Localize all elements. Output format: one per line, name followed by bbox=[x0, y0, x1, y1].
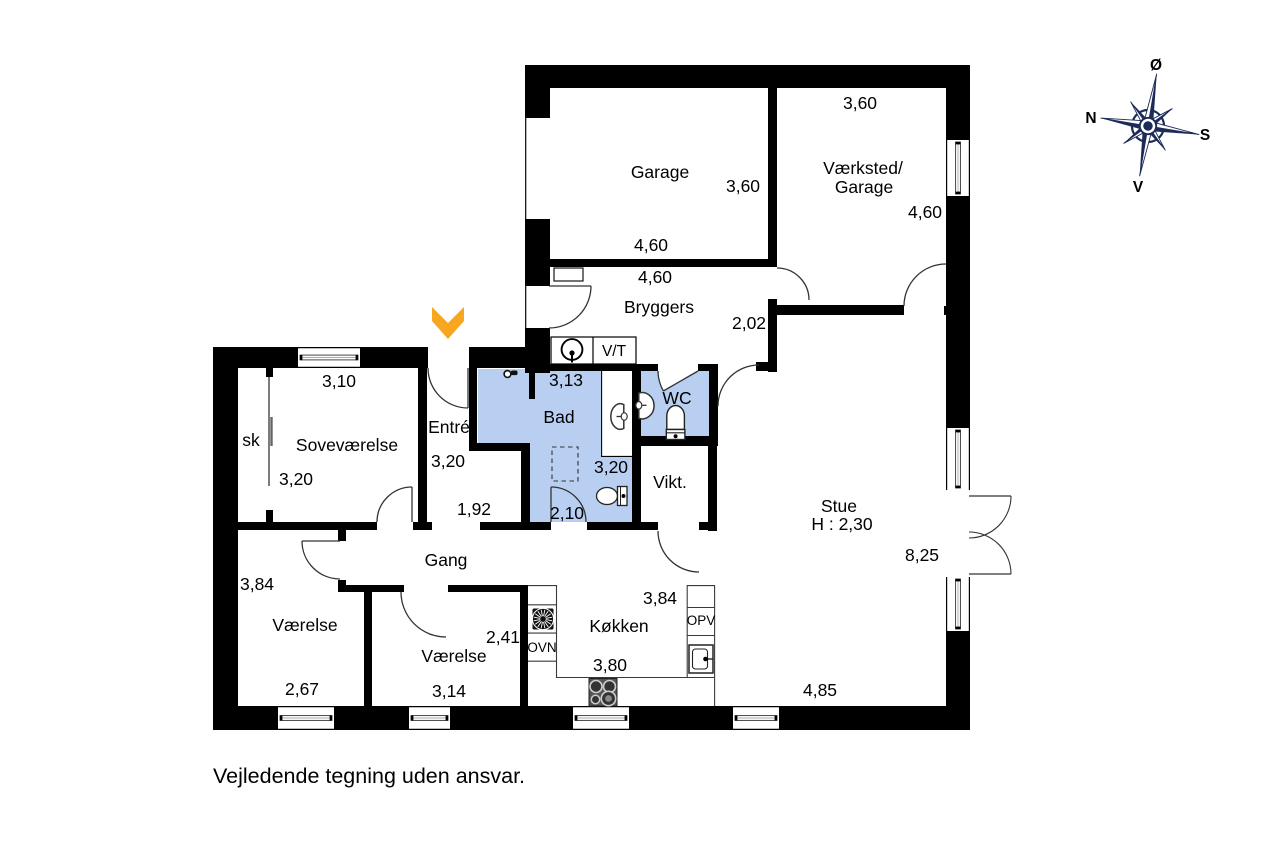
svg-text:Gang: Gang bbox=[425, 550, 468, 570]
svg-text:8,25: 8,25 bbox=[905, 545, 939, 565]
svg-text:3,60: 3,60 bbox=[726, 176, 760, 196]
svg-text:3,20: 3,20 bbox=[279, 469, 313, 489]
svg-text:3,60: 3,60 bbox=[843, 93, 877, 113]
svg-text:1,92: 1,92 bbox=[457, 499, 491, 519]
svg-text:Ø: Ø bbox=[1150, 57, 1162, 74]
svg-text:WC: WC bbox=[662, 388, 691, 408]
svg-text:3,14: 3,14 bbox=[432, 681, 466, 701]
svg-text:Vikt.: Vikt. bbox=[653, 472, 687, 492]
svg-text:3,20: 3,20 bbox=[594, 457, 628, 477]
svg-text:4,85: 4,85 bbox=[803, 680, 837, 700]
svg-text:3,13: 3,13 bbox=[549, 370, 583, 390]
svg-text:Entré: Entré bbox=[428, 417, 470, 437]
svg-text:Soveværelse: Soveværelse bbox=[296, 435, 398, 455]
svg-text:V/T: V/T bbox=[602, 343, 627, 360]
svg-text:Garage: Garage bbox=[631, 162, 689, 182]
svg-text:sk: sk bbox=[242, 430, 260, 450]
svg-text:2,41: 2,41 bbox=[486, 627, 520, 647]
svg-text:2,02: 2,02 bbox=[732, 313, 766, 333]
svg-text:3,84: 3,84 bbox=[240, 574, 274, 594]
svg-text:H : 2,30: H : 2,30 bbox=[811, 514, 873, 534]
svg-text:S: S bbox=[1200, 127, 1210, 144]
svg-text:OPV: OPV bbox=[687, 613, 716, 628]
svg-text:4,60: 4,60 bbox=[638, 267, 672, 287]
svg-text:2,10: 2,10 bbox=[550, 503, 584, 523]
svg-text:3,84: 3,84 bbox=[643, 588, 677, 608]
svg-text:Værksted/: Værksted/ bbox=[823, 158, 903, 178]
svg-text:Værelse: Værelse bbox=[421, 646, 486, 666]
svg-text:Bryggers: Bryggers bbox=[624, 297, 694, 317]
svg-text:Køkken: Køkken bbox=[589, 616, 648, 636]
svg-text:Vejledende tegning uden ansvar: Vejledende tegning uden ansvar. bbox=[213, 764, 525, 788]
svg-text:Bad: Bad bbox=[543, 407, 574, 427]
svg-text:OVN: OVN bbox=[527, 640, 556, 655]
svg-text:Garage: Garage bbox=[835, 177, 893, 197]
svg-text:2,67: 2,67 bbox=[285, 679, 319, 699]
svg-text:N: N bbox=[1085, 110, 1096, 127]
svg-text:3,80: 3,80 bbox=[593, 655, 627, 675]
svg-text:3,20: 3,20 bbox=[431, 451, 465, 471]
svg-text:Stue: Stue bbox=[821, 496, 857, 516]
svg-text:3,10: 3,10 bbox=[322, 371, 356, 391]
svg-text:4,60: 4,60 bbox=[908, 202, 942, 222]
svg-text:V: V bbox=[1133, 179, 1144, 196]
svg-text:4,60: 4,60 bbox=[634, 235, 668, 255]
svg-text:Værelse: Værelse bbox=[272, 615, 337, 635]
